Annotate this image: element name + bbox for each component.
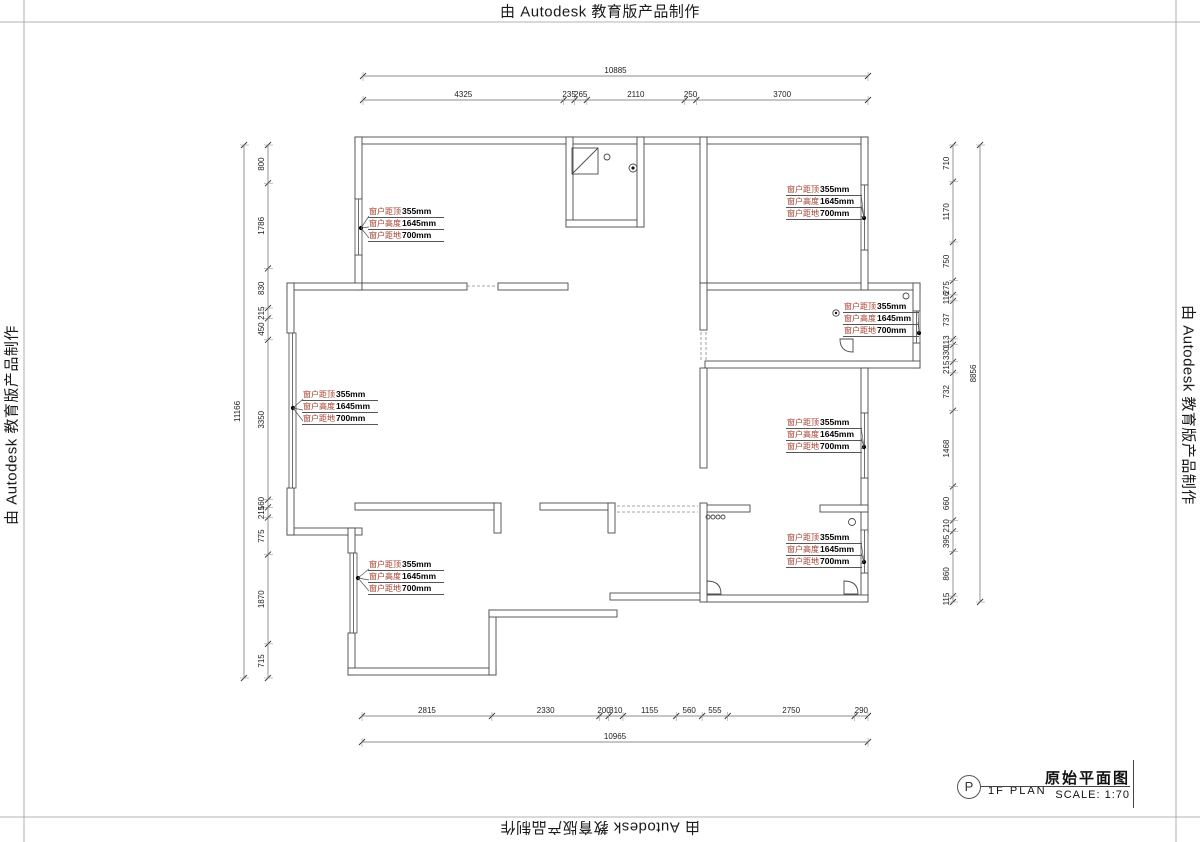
window-annotation-line: 窗户距顶355mm: [302, 389, 378, 401]
annotation-label-text: 窗户高度: [844, 314, 876, 323]
dimension-label: 710: [942, 156, 951, 170]
annotation-value-text: 700mm: [877, 325, 906, 335]
annotation-label-text: 窗户高度: [787, 197, 819, 206]
annotation-value-text: 700mm: [402, 230, 431, 240]
dimension-label: 775: [257, 529, 266, 543]
window-annotation-line: 窗户距地700mm: [368, 230, 444, 242]
window-annotation-line: 窗户距地700mm: [786, 556, 862, 568]
title-block-line: [980, 786, 1130, 787]
dimension-label: 250: [684, 90, 698, 99]
dimension-label: 1155: [641, 706, 659, 715]
dimension-label: 8856: [969, 364, 978, 382]
window-annotation-5: 窗户距顶355mm窗户高度1645mm窗户距地700mm: [786, 417, 862, 453]
dimension-label: 310: [609, 706, 623, 715]
scale-label: SCALE: 1:70: [1038, 789, 1130, 801]
window-annotation-4: 窗户距顶355mm窗户高度1645mm窗户距地700mm: [302, 389, 378, 425]
dimension-label: 860: [942, 567, 951, 581]
dimension-label: 2330: [537, 706, 555, 715]
annotation-label-text: 窗户距顶: [787, 533, 819, 542]
annotation-value-text: 700mm: [820, 441, 849, 451]
annotation-value-text: 355mm: [336, 389, 365, 399]
annotation-label-text: 窗户距地: [787, 442, 819, 451]
dimension-label: 3350: [257, 410, 266, 428]
window-annotation-line: 窗户高度1645mm: [368, 218, 444, 230]
annotation-label-text: 窗户距地: [787, 209, 819, 218]
annotation-label-text: 窗户高度: [369, 219, 401, 228]
window-annotation-line: 窗户距顶355mm: [786, 532, 862, 544]
window-annotation-6: 窗户距顶355mm窗户高度1645mm窗户距地700mm: [786, 532, 862, 568]
window-annotation-line: 窗户距地700mm: [843, 325, 919, 337]
annotation-label-text: 窗户距地: [303, 414, 335, 423]
window-annotation-line: 窗户距地700mm: [786, 441, 862, 453]
watermark-left: 由 Autodesk 教育版产品制作: [1, 325, 22, 525]
dimension-label: 1468: [942, 439, 951, 457]
dimension-label: 10965: [604, 732, 627, 741]
annotation-value-text: 700mm: [402, 583, 431, 593]
dimension-label: 1170: [942, 203, 951, 221]
dimension-label: 800: [257, 157, 266, 171]
annotation-value-text: 355mm: [820, 532, 849, 542]
annotation-value-text: 1645mm: [877, 313, 911, 323]
annotation-value-text: 1645mm: [820, 544, 854, 554]
dimension-label: 750: [942, 254, 951, 268]
dimension-label: 3700: [773, 90, 791, 99]
window-annotation-line: 窗户高度1645mm: [786, 544, 862, 556]
annotation-value-text: 355mm: [877, 301, 906, 311]
dimension-label: 1870: [257, 590, 266, 608]
annotation-value-text: 355mm: [402, 559, 431, 569]
window-annotation-line: 窗户高度1645mm: [302, 401, 378, 413]
annotation-value-text: 355mm: [402, 206, 431, 216]
title-block-line: [1133, 760, 1134, 808]
dimension-label: 11166: [233, 400, 242, 422]
annotation-value-text: 355mm: [820, 417, 849, 427]
dimension-label: 115: [942, 592, 951, 605]
window-annotation-line: 窗户距顶355mm: [368, 206, 444, 218]
dimension-label: 1786: [257, 216, 266, 234]
window-annotation-3: 窗户距顶355mm窗户高度1645mm窗户距地700mm: [843, 301, 919, 337]
dimension-label: 560: [683, 706, 697, 715]
watermark-top: 由 Autodesk 教育版产品制作: [500, 1, 700, 22]
annotation-value-text: 700mm: [820, 556, 849, 566]
plan-symbol-circle: P: [957, 775, 981, 799]
annotation-value-text: 700mm: [336, 413, 365, 423]
window-annotation-line: 窗户距顶355mm: [786, 417, 862, 429]
window-annotation-line: 窗户距地700mm: [368, 583, 444, 595]
window-annotation-7: 窗户距顶355mm窗户高度1645mm窗户距地700mm: [368, 559, 444, 595]
dimension-label: 395: [942, 534, 951, 548]
annotation-value-text: 1645mm: [336, 401, 370, 411]
window-annotation-line: 窗户距顶355mm: [786, 184, 862, 196]
watermark-right: 由 Autodesk 教育版产品制作: [1179, 305, 1200, 505]
annotation-label-text: 窗户高度: [787, 430, 819, 439]
drawing-title: 原始平面图: [1038, 767, 1130, 788]
annotation-value-text: 1645mm: [402, 218, 436, 228]
dimension-label: 265: [574, 90, 588, 99]
annotation-label-text: 窗户距顶: [844, 302, 876, 311]
annotation-label-text: 窗户距地: [844, 326, 876, 335]
annotation-label-text: 窗户距顶: [369, 207, 401, 216]
window-annotation-2: 窗户距顶355mm窗户高度1645mm窗户距地700mm: [786, 184, 862, 220]
annotation-label-text: 窗户距地: [787, 557, 819, 566]
dimension-annotation-layer: 4325235265211025037001088528152330200310…: [0, 0, 1200, 842]
annotation-value-text: 1645mm: [402, 571, 436, 581]
dimension-label: 210: [942, 519, 951, 533]
dimension-label: 116: [942, 291, 951, 304]
dimension-label: 715: [257, 654, 266, 668]
window-annotation-line: 窗户距顶355mm: [843, 301, 919, 313]
annotation-label-text: 窗户高度: [369, 572, 401, 581]
dimension-label: 10885: [604, 66, 627, 75]
window-annotation-line: 窗户高度1645mm: [843, 313, 919, 325]
dimension-label: 4325: [454, 90, 472, 99]
annotation-label-text: 窗户距顶: [787, 418, 819, 427]
annotation-label-text: 窗户距顶: [787, 185, 819, 194]
annotation-label-text: 窗户高度: [787, 545, 819, 554]
window-annotation-line: 窗户高度1645mm: [786, 196, 862, 208]
dimension-label: 2815: [418, 706, 436, 715]
annotation-label-text: 窗户距地: [369, 231, 401, 240]
window-annotation-line: 窗户距顶355mm: [368, 559, 444, 571]
annotation-value-text: 1645mm: [820, 196, 854, 206]
dimension-label: 732: [942, 385, 951, 399]
annotation-value-text: 700mm: [820, 208, 849, 218]
window-annotation-line: 窗户高度1645mm: [368, 571, 444, 583]
dimension-label: 2110: [627, 90, 645, 99]
annotation-label-text: 窗户高度: [303, 402, 335, 411]
dimension-label: 450: [257, 322, 266, 336]
annotation-value-text: 355mm: [820, 184, 849, 194]
drawing-sheet: 4325235265211025037001088528152330200310…: [0, 0, 1200, 842]
dimension-label: 113: [942, 335, 951, 348]
annotation-label-text: 窗户距顶: [303, 390, 335, 399]
window-annotation-1: 窗户距顶355mm窗户高度1645mm窗户距地700mm: [368, 206, 444, 242]
dimension-label: 215: [942, 360, 951, 374]
dimension-label: 2750: [782, 706, 800, 715]
dimension-label: 660: [942, 496, 951, 510]
window-annotation-line: 窗户高度1645mm: [786, 429, 862, 441]
annotation-value-text: 1645mm: [820, 429, 854, 439]
window-annotation-line: 窗户距地700mm: [786, 208, 862, 220]
dimension-label: 555: [708, 706, 722, 715]
dimension-label: 290: [855, 706, 869, 715]
dimension-label: 215: [257, 306, 266, 320]
dimension-label: 737: [942, 313, 951, 327]
annotation-label-text: 窗户距地: [369, 584, 401, 593]
watermark-bottom: 由 Autodesk 教育版产品制作: [500, 818, 700, 839]
window-annotation-line: 窗户距地700mm: [302, 413, 378, 425]
dimension-label: 330: [942, 346, 951, 360]
dimension-label: 830: [257, 281, 266, 295]
annotation-label-text: 窗户距顶: [369, 560, 401, 569]
dimension-label: 215: [257, 505, 266, 519]
